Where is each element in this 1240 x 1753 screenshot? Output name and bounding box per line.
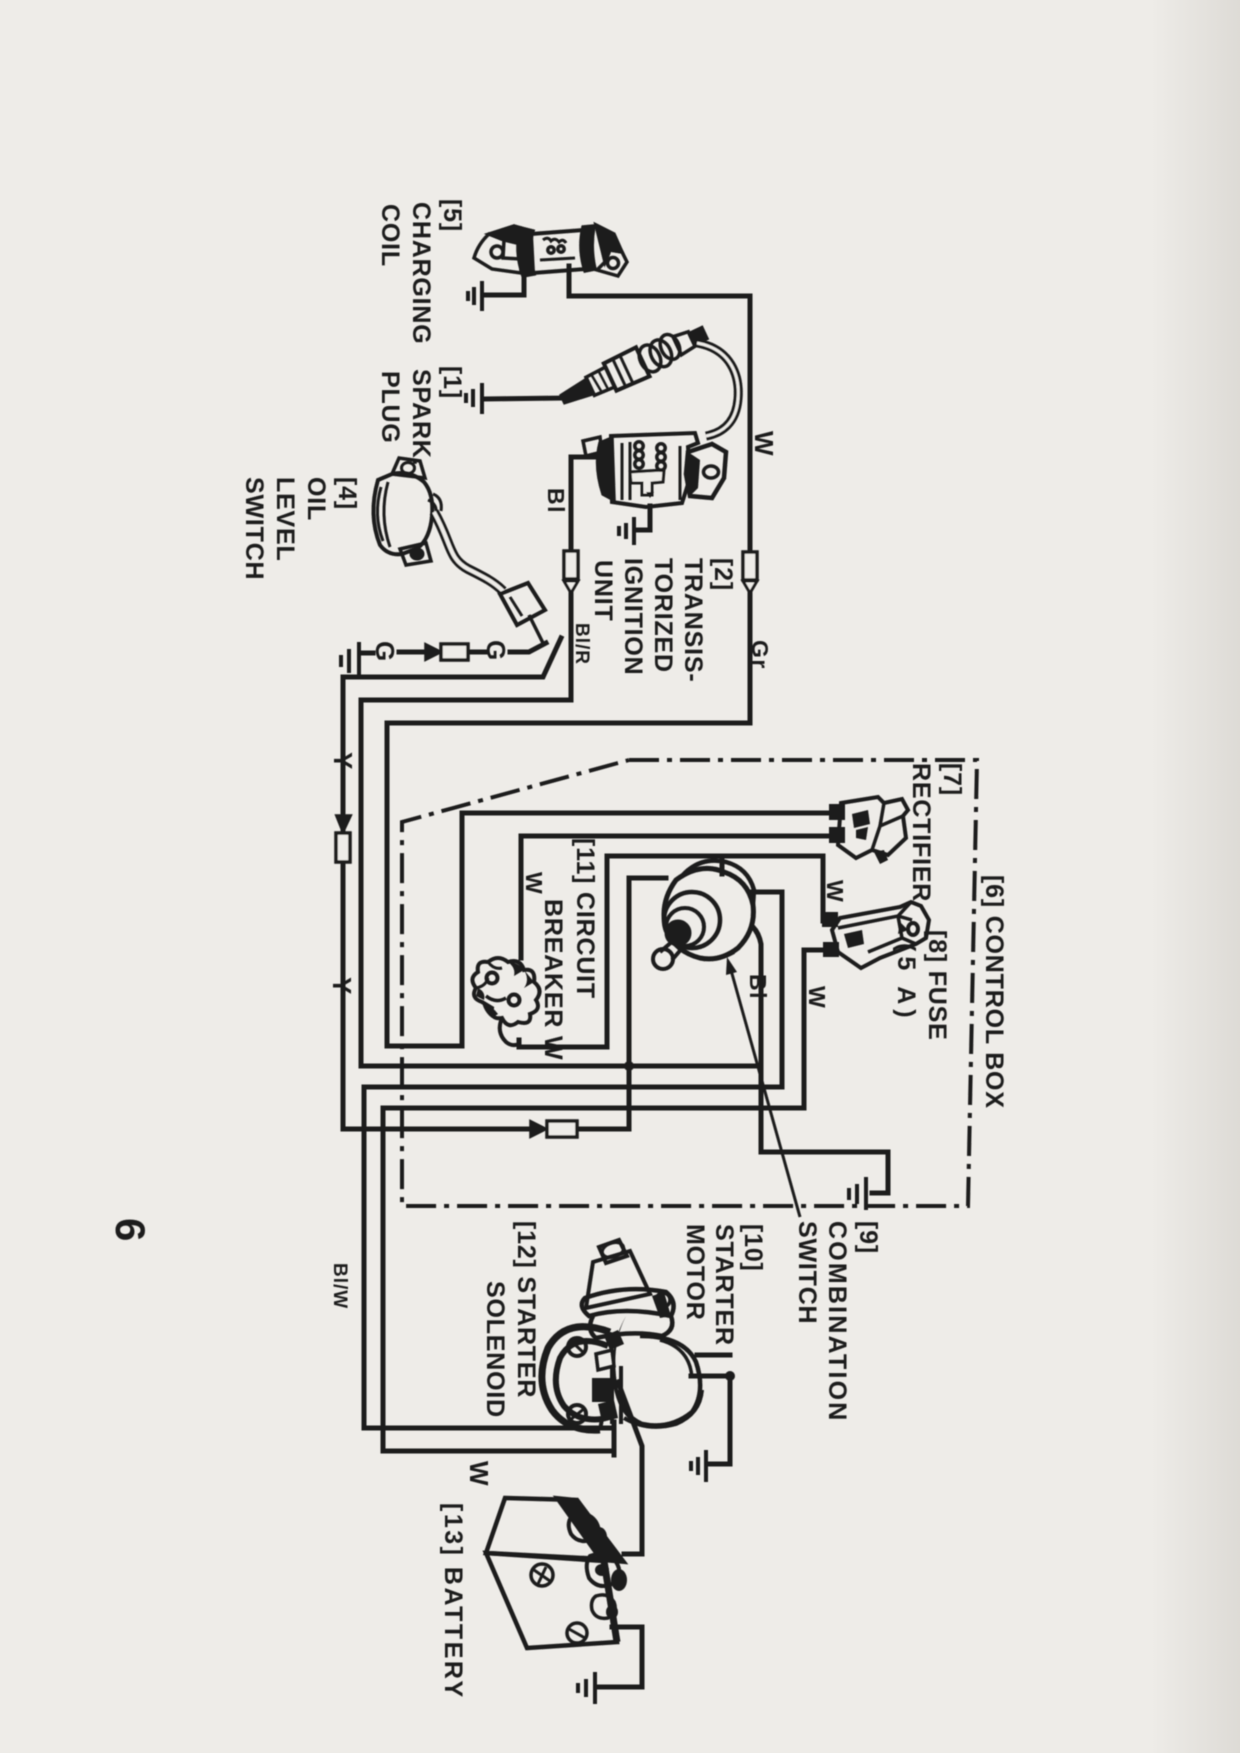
svg-text:(5 A): (5 A) [892, 943, 920, 1023]
svg-text:MOTOR: MOTOR [681, 1224, 709, 1321]
svg-text:G: G [370, 641, 400, 661]
svg-text:COIL: COIL [376, 204, 404, 267]
svg-text:Bl: Bl [745, 974, 771, 1000]
svg-text:[2]: [2] [709, 558, 737, 591]
svg-text:[11] CIRCUIT: [11] CIRCUIT [571, 838, 599, 999]
svg-text:Bl: Bl [543, 488, 569, 514]
svg-text:[7]: [7] [938, 763, 966, 796]
svg-text:STARTER: STARTER [710, 1224, 738, 1346]
svg-text:Bl/W: Bl/W [329, 1263, 350, 1309]
svg-text:[12] STARTER: [12] STARTER [512, 1221, 540, 1398]
svg-text:TORIZED: TORIZED [649, 558, 677, 673]
svg-text:[8] FUSE: [8] FUSE [923, 930, 951, 1041]
svg-text:W: W [749, 431, 779, 456]
svg-text:PLUG: PLUG [376, 371, 404, 444]
svg-text:CHARGING: CHARGING [407, 202, 435, 345]
svg-text:SOLENOID: SOLENOID [481, 1281, 509, 1418]
svg-text:Y: Y [327, 977, 357, 994]
svg-text:BREAKER W: BREAKER W [539, 899, 567, 1060]
svg-text:RECTIFIER: RECTIFIER [907, 763, 935, 902]
svg-text:UNIT: UNIT [589, 560, 617, 622]
svg-text:SPARK.: SPARK. [407, 369, 435, 466]
svg-text:[6] CONTROL BOX: [6] CONTROL BOX [980, 875, 1008, 1109]
svg-text:6: 6 [107, 1218, 154, 1241]
svg-text:[5]: [5] [438, 199, 466, 232]
svg-text:LEVEL: LEVEL [271, 477, 299, 562]
svg-text:SWITCH: SWITCH [240, 477, 268, 580]
svg-text:Gr: Gr [747, 640, 773, 670]
svg-text:Y: Y [328, 752, 358, 769]
svg-text:[4]: [4] [333, 477, 361, 510]
svg-text:[10]: [10] [739, 1224, 767, 1272]
svg-text:[1]: [1] [438, 366, 466, 399]
svg-text:G: G [481, 640, 511, 660]
svg-text:COMBINATION: COMBINATION [823, 1221, 851, 1423]
svg-text:W: W [521, 872, 547, 895]
svg-text:Bl/R: Bl/R [571, 623, 592, 665]
svg-text:TRANSIS-: TRANSIS- [679, 558, 707, 682]
svg-text:W: W [804, 986, 830, 1009]
svg-text:W: W [822, 880, 848, 903]
svg-text:[9]: [9] [854, 1221, 882, 1254]
svg-text:OIL: OIL [302, 477, 330, 521]
svg-text:W: W [464, 1461, 494, 1486]
svg-text:IGNITION: IGNITION [619, 558, 647, 676]
svg-text:SWITCH: SWITCH [793, 1221, 821, 1324]
svg-text:[13] BATTERY: [13] BATTERY [439, 1503, 467, 1700]
